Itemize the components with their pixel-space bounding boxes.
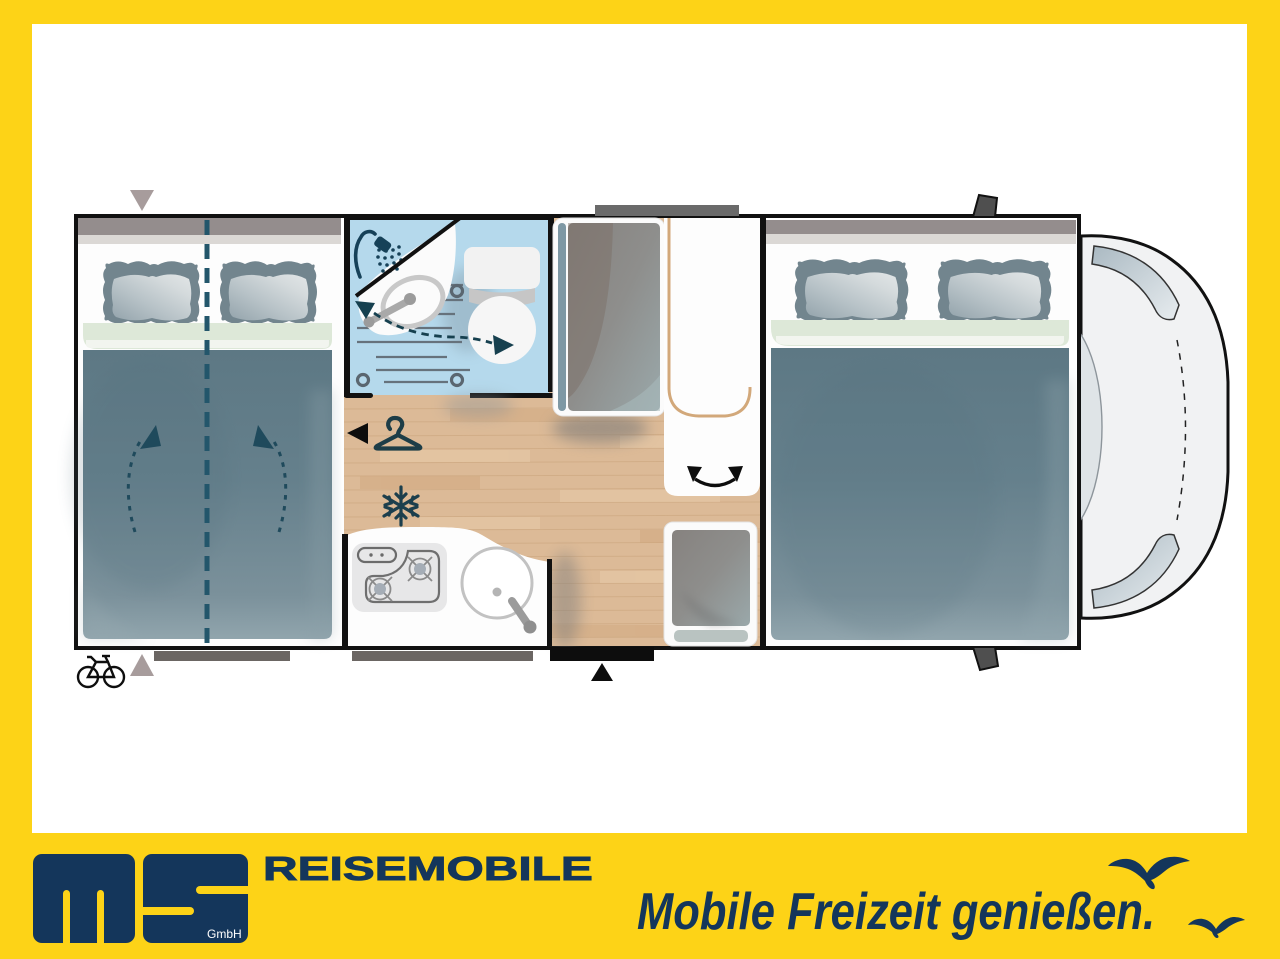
svg-text:Mobile Freizeit genießen.: Mobile Freizeit genießen. [637,883,1155,940]
svg-text:GmbH: GmbH [207,927,242,941]
svg-text:REISEMOBILE: REISEMOBILE [263,850,593,887]
